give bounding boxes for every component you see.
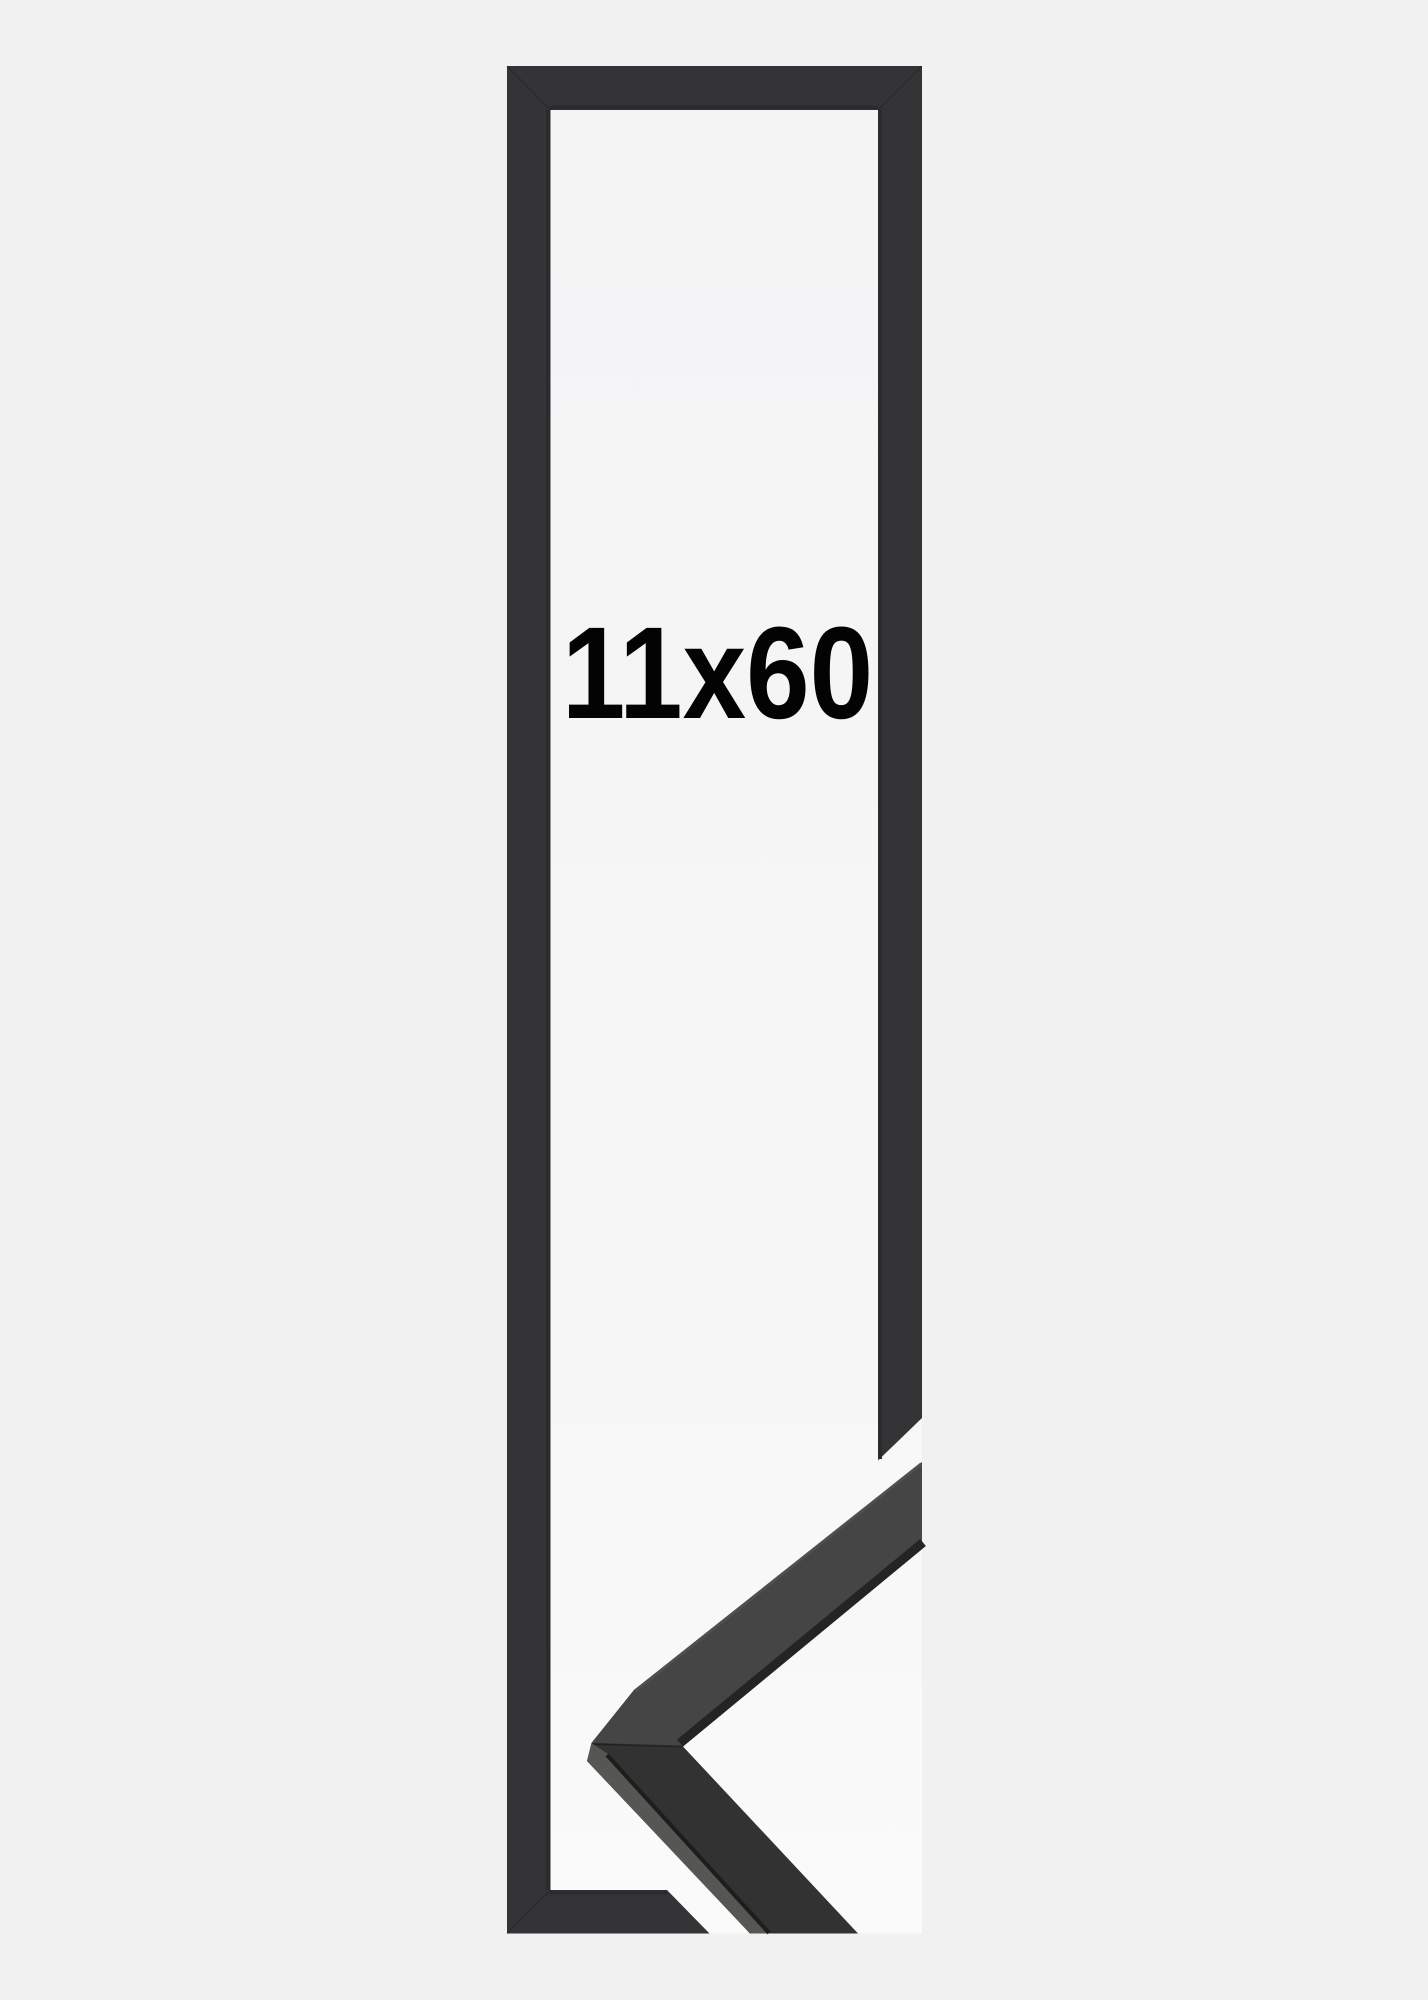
svg-text:11x60: 11x60 — [562, 601, 873, 747]
